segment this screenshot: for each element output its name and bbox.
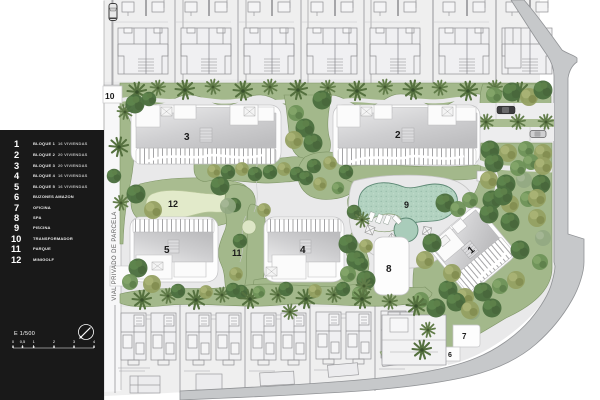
svg-text:5: 5 (164, 245, 170, 256)
svg-text:3: 3 (14, 161, 19, 171)
svg-text:1: 1 (14, 139, 19, 149)
svg-text:10: 10 (11, 234, 21, 244)
svg-text:11: 11 (11, 244, 21, 254)
svg-text:20 VIVIENDAS: 20 VIVIENDAS (58, 152, 88, 157)
svg-text:9: 9 (404, 200, 409, 210)
svg-text:2: 2 (395, 130, 401, 141)
svg-text:3: 3 (184, 132, 190, 143)
svg-text:6: 6 (448, 352, 452, 359)
svg-text:12: 12 (11, 255, 21, 265)
svg-text:MINIGOLF: MINIGOLF (33, 257, 55, 262)
svg-text:VIAL PRIVADO DE PARCELA: VIAL PRIVADO DE PARCELA (112, 211, 118, 300)
svg-text:BUZONES AMAZON: BUZONES AMAZON (33, 194, 74, 199)
svg-text:TRANSFORMADOR: TRANSFORMADOR (33, 236, 73, 241)
svg-text:11: 11 (232, 248, 242, 258)
svg-text:BLOQUE 4: BLOQUE 4 (33, 173, 56, 178)
svg-text:PISCINA: PISCINA (33, 225, 51, 230)
svg-text:10: 10 (105, 91, 115, 101)
svg-text:7: 7 (462, 332, 467, 341)
svg-text:BLOQUE 1: BLOQUE 1 (33, 141, 56, 146)
svg-text:4: 4 (14, 171, 20, 181)
svg-text:4: 4 (300, 245, 306, 256)
svg-text:2: 2 (14, 150, 19, 160)
svg-text:OFICINA: OFICINA (33, 205, 51, 210)
svg-text:9: 9 (14, 223, 19, 233)
svg-text:16 VIVIENDAS: 16 VIVIENDAS (58, 184, 88, 189)
svg-text:SPA: SPA (33, 215, 42, 220)
svg-text:BLOQUE 2: BLOQUE 2 (33, 152, 56, 157)
svg-text:12: 12 (168, 199, 178, 209)
svg-text:0,5: 0,5 (20, 339, 26, 344)
svg-text:20 VIVIENDAS: 20 VIVIENDAS (58, 163, 88, 168)
svg-text:BLOQUE 5: BLOQUE 5 (33, 184, 56, 189)
svg-text:5: 5 (14, 182, 19, 192)
svg-text:6: 6 (14, 192, 19, 202)
svg-text:BLOQUE 3: BLOQUE 3 (33, 163, 56, 168)
svg-text:7: 7 (14, 203, 19, 213)
svg-text:8: 8 (14, 213, 19, 223)
svg-text:8: 8 (386, 264, 392, 275)
svg-text:PARQUE: PARQUE (33, 246, 51, 251)
svg-text:16 VIVIENDAS: 16 VIVIENDAS (58, 173, 88, 178)
svg-text:E 1/500: E 1/500 (14, 331, 35, 337)
svg-text:16 VIVIENDAS: 16 VIVIENDAS (58, 141, 88, 146)
